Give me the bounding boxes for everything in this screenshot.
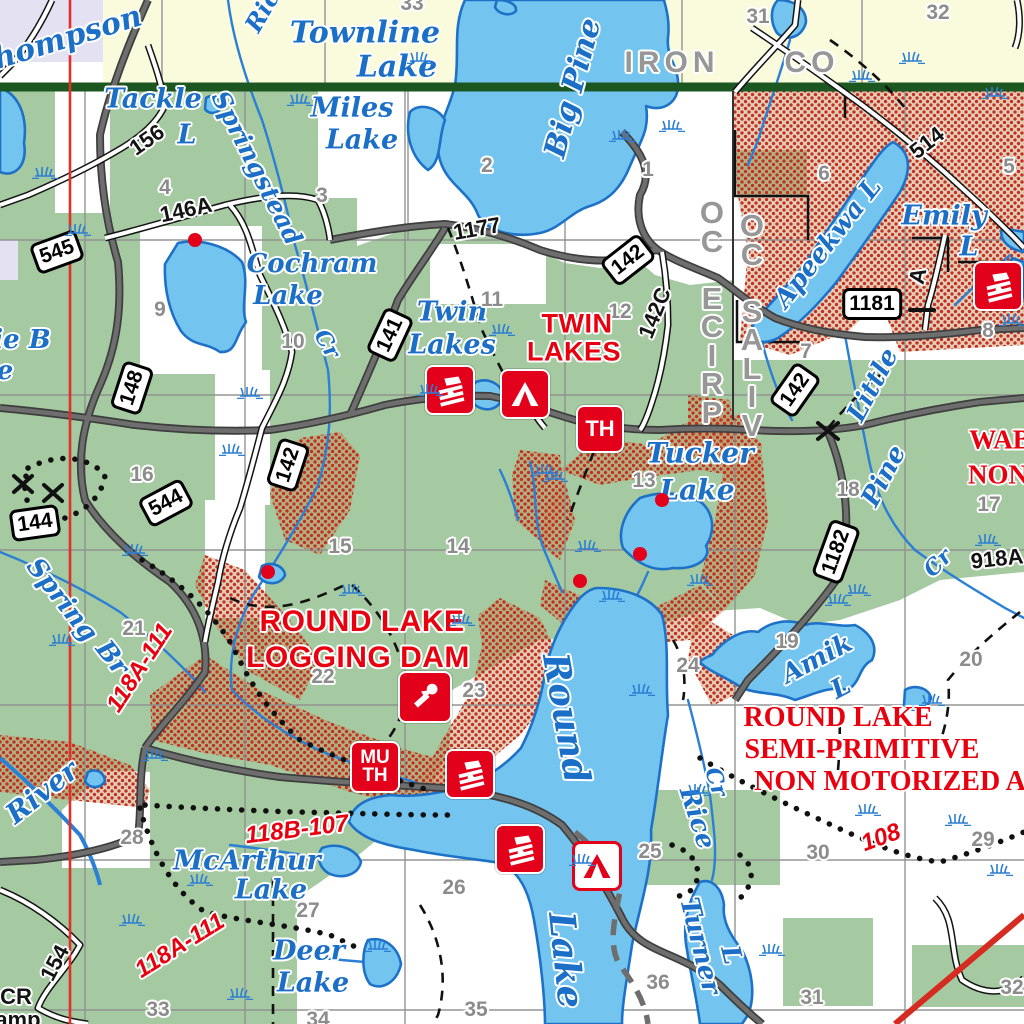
boat-launch-icon <box>495 824 545 874</box>
red-area-label: LOGGING DAM <box>246 641 470 675</box>
marsh-symbol <box>449 613 475 631</box>
section-number: 32 <box>926 1 949 25</box>
section-number: 35 <box>464 998 487 1022</box>
marsh-symbol <box>849 69 875 87</box>
mu-trailhead-icon: MUTH <box>350 741 400 793</box>
red-area-label: NON <box>968 460 1024 491</box>
marsh-symbol <box>287 93 313 111</box>
section-number: 16 <box>130 463 153 487</box>
section-number: 1 <box>642 158 654 182</box>
marsh-symbol <box>987 863 1013 881</box>
boat-launch-icon <box>445 749 495 799</box>
section-number: 13 <box>632 469 655 493</box>
section-number: 27 <box>296 899 319 923</box>
lake-top-left <box>0 88 25 174</box>
section-number: 3 <box>316 184 328 208</box>
red-area-label: LAKES <box>527 337 621 368</box>
marsh-symbol <box>599 589 625 607</box>
lake-mcarthur <box>319 846 361 876</box>
lake-label: Miles <box>311 93 394 124</box>
lake-label: Lakes <box>408 330 496 361</box>
lake-label: Lake <box>659 474 734 507</box>
lake-label: L <box>178 120 197 151</box>
section-number: 32 <box>1000 976 1023 1000</box>
section-number: 2 <box>481 154 493 178</box>
lake-cochram <box>165 242 246 353</box>
red-area-label: NON MOTORIZED A <box>754 766 1024 798</box>
section-number: 8 <box>982 319 994 343</box>
section-number: 11 <box>481 288 503 312</box>
marsh-symbol <box>609 129 635 147</box>
marsh-symbol <box>339 583 365 601</box>
marsh-symbol <box>65 223 91 241</box>
route-shield: 144 <box>8 504 61 543</box>
red-area-label: WAB <box>969 425 1024 456</box>
lake-label: Lake <box>326 125 398 156</box>
boat-launch-icon <box>973 261 1023 311</box>
marsh-symbol <box>227 987 253 1005</box>
section-number: 31 <box>800 986 823 1010</box>
marsh-symbol <box>855 803 881 821</box>
section-number: 18 <box>836 478 859 502</box>
poi-red-dot <box>188 233 202 247</box>
county-label-vilas: OC SALIV <box>739 176 766 440</box>
lake-label: Tucker <box>646 437 754 470</box>
section-number: 5 <box>1003 155 1015 179</box>
marsh-symbol <box>845 583 871 601</box>
lake-pond-river <box>85 770 105 787</box>
marsh-symbol <box>417 383 443 401</box>
poi-red-dot <box>573 574 587 588</box>
county-label-iron-co: CO <box>785 46 840 80</box>
lake-label: e <box>0 356 13 386</box>
red-area-label: TWIN <box>542 309 613 340</box>
route-shield: 1181 <box>842 288 902 320</box>
marsh-symbol <box>982 86 1008 104</box>
county-label-price: OC ECIRP <box>699 163 726 427</box>
lake-label: Emily <box>901 201 986 232</box>
section-number: 17 <box>977 493 1000 517</box>
campground-icon <box>500 369 550 419</box>
logging-dam-icon <box>398 671 452 723</box>
poi-red-dot <box>655 493 669 507</box>
marsh-symbol <box>999 313 1024 331</box>
lake-label: Cochram <box>247 249 378 279</box>
section-number: 36 <box>646 971 669 995</box>
marsh-symbol <box>687 573 713 591</box>
section-number: 25 <box>638 840 661 864</box>
section-number: 26 <box>442 876 465 900</box>
section-number: 31 <box>746 5 769 29</box>
section-number: 33 <box>146 998 169 1022</box>
lake-label: Twin <box>417 297 487 328</box>
marsh-symbol <box>187 873 213 891</box>
section-number: 23 <box>462 679 485 703</box>
poi-red-dot <box>633 547 647 561</box>
red-highway <box>895 915 1024 1024</box>
section-number: 29 <box>971 828 994 852</box>
marsh-symbol <box>569 853 595 871</box>
marsh-symbol <box>759 943 785 961</box>
marsh-symbol <box>899 51 925 69</box>
section-number: 4 <box>159 176 171 200</box>
marsh-symbol <box>32 166 58 184</box>
red-area-label: ROUND LAKE <box>743 702 932 734</box>
marsh-symbol <box>685 783 711 801</box>
marsh-symbol <box>122 543 148 561</box>
marsh-symbol <box>659 119 685 137</box>
marsh-symbol <box>489 323 515 341</box>
lake-label: Lake <box>253 281 323 311</box>
section-number: 7 <box>800 340 812 364</box>
marsh-symbol <box>629 683 655 701</box>
marsh-symbol <box>407 51 433 69</box>
marsh-symbol <box>532 463 558 481</box>
section-number: 33 <box>400 0 423 16</box>
marsh-symbol <box>575 539 601 557</box>
section-number: 14 <box>446 535 469 559</box>
trailhead-icon: TH <box>576 405 624 453</box>
lake-label: L <box>960 232 979 263</box>
section-number: 6 <box>818 162 830 186</box>
section-number: 34 <box>306 1008 329 1024</box>
section-number: 15 <box>328 535 351 559</box>
marsh-symbol <box>945 813 971 831</box>
section-number: 19 <box>775 630 798 654</box>
road-name-label: Camp <box>0 1007 41 1024</box>
section-number: 10 <box>281 330 304 354</box>
marsh-symbol <box>219 443 245 461</box>
lake-label: Deer <box>273 936 345 967</box>
section-number: 24 <box>676 654 699 678</box>
lake-label: Townline <box>290 16 440 51</box>
section-number: 28 <box>120 826 143 850</box>
lake-label: Lake <box>277 968 349 999</box>
marsh-symbol <box>237 386 263 404</box>
poi-red-dot <box>261 565 275 579</box>
map-canvas[interactable]: ThompsonTownlineLakeMilesLakeTackleLRicB… <box>0 0 1024 1024</box>
marsh-symbol <box>365 939 391 957</box>
county-label-iron: IRON <box>625 46 720 80</box>
marsh-symbol <box>119 913 145 931</box>
marsh-symbol <box>49 633 75 651</box>
marsh-symbol <box>975 533 1001 551</box>
lake-label: ie B <box>0 325 51 355</box>
section-number: 20 <box>959 648 982 672</box>
marsh-symbol <box>919 693 945 711</box>
lake-label: Tackle <box>104 84 202 115</box>
section-number: 30 <box>806 841 829 865</box>
marsh-symbol <box>142 748 168 766</box>
red-area-label: ROUND LAKE <box>260 605 465 639</box>
red-area-label: SEMI-PRIMITIVE <box>745 734 980 766</box>
section-number: 9 <box>154 298 166 322</box>
